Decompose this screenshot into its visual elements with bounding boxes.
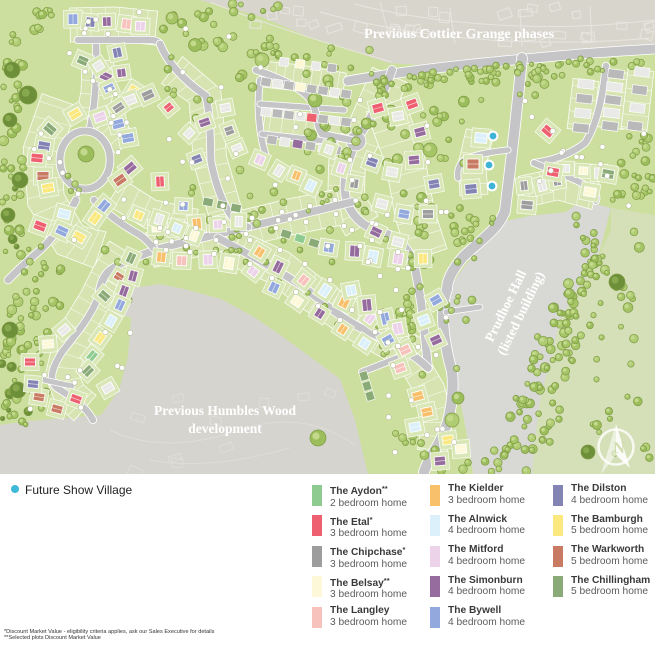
svg-text:Previous Cottier Grange phases: Previous Cottier Grange phases — [364, 27, 554, 42]
svg-text:N: N — [613, 440, 625, 457]
